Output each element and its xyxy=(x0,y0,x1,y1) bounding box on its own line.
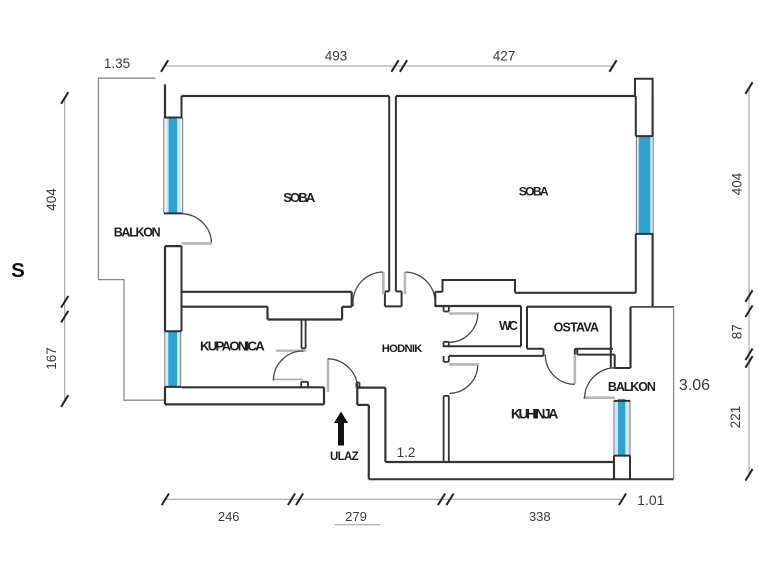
svg-text:WC: WC xyxy=(499,319,518,333)
svg-text:3.06: 3.06 xyxy=(679,377,710,394)
svg-text:1.01: 1.01 xyxy=(637,492,664,508)
svg-text:404: 404 xyxy=(44,188,59,211)
svg-text:427: 427 xyxy=(493,49,516,64)
svg-text:S: S xyxy=(11,259,25,282)
svg-text:KUHINJA: KUHINJA xyxy=(511,405,559,421)
svg-text:BALKON: BALKON xyxy=(608,380,656,394)
svg-text:493: 493 xyxy=(325,49,348,64)
svg-text:OSTAVA: OSTAVA xyxy=(554,320,599,334)
svg-text:87: 87 xyxy=(730,324,745,339)
svg-text:246: 246 xyxy=(218,509,240,524)
svg-text:1.35: 1.35 xyxy=(104,56,130,71)
svg-text:SOBA: SOBA xyxy=(283,190,315,205)
svg-text:SOBA: SOBA xyxy=(519,185,549,199)
svg-text:221: 221 xyxy=(728,406,743,429)
svg-text:KUPAONICA: KUPAONICA xyxy=(200,339,265,354)
svg-text:ULAZ: ULAZ xyxy=(330,451,359,463)
svg-text:167: 167 xyxy=(44,347,59,370)
svg-text:338: 338 xyxy=(529,509,551,524)
svg-text:279: 279 xyxy=(345,509,367,524)
svg-text:404: 404 xyxy=(730,172,745,195)
svg-text:1.2: 1.2 xyxy=(397,445,416,460)
svg-text:HODNIK: HODNIK xyxy=(382,343,423,355)
svg-text:BALKON: BALKON xyxy=(114,226,161,240)
